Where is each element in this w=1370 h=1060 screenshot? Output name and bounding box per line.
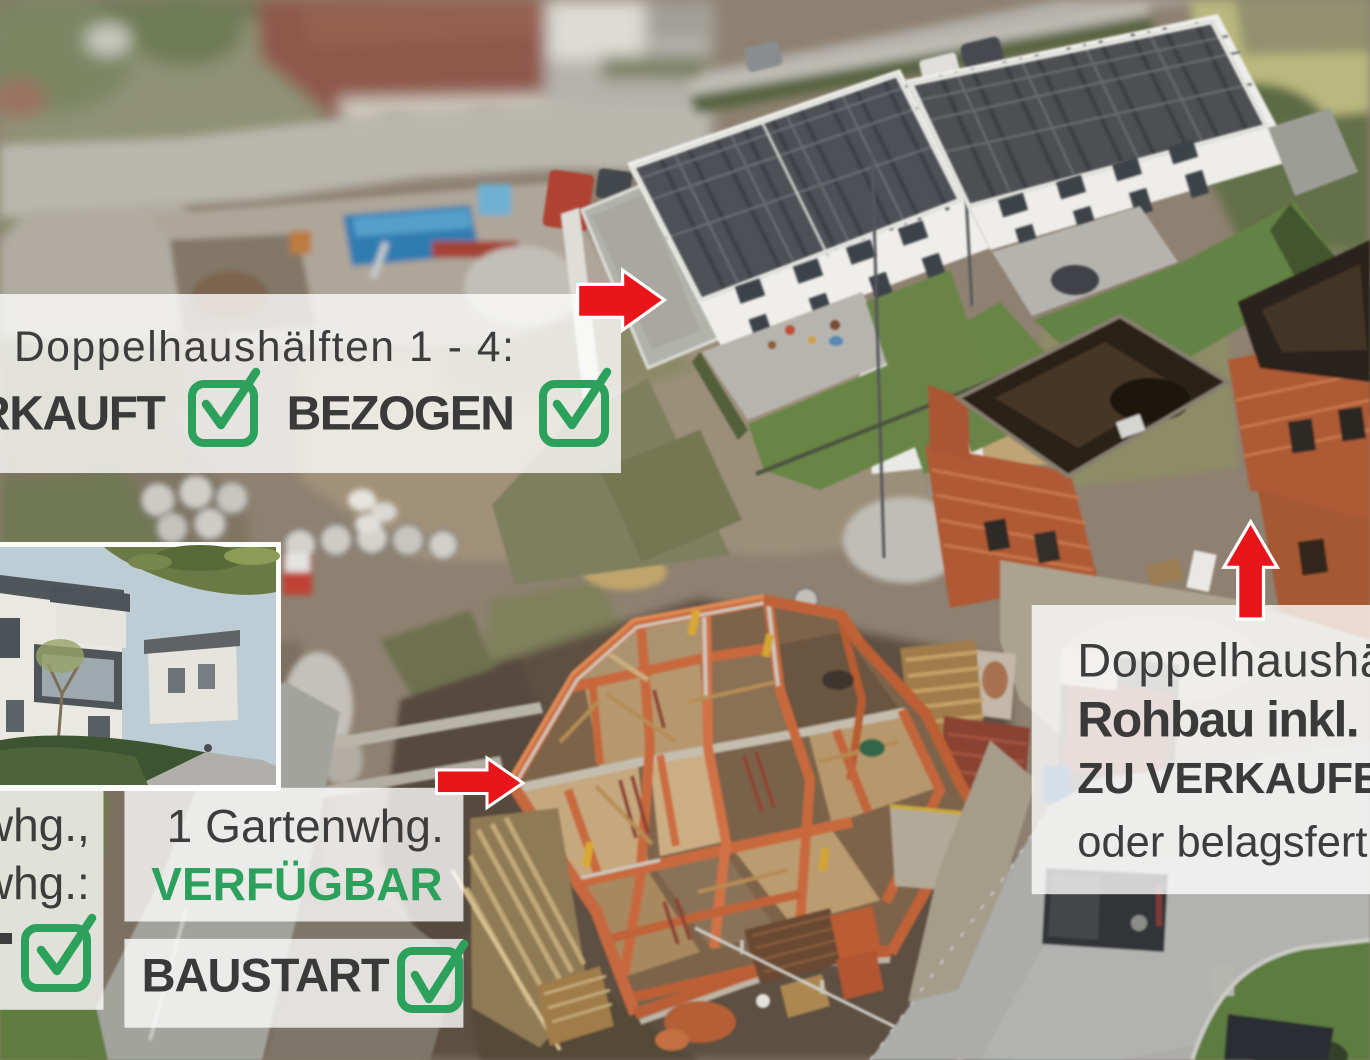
svg-text:Doppelhaushälften 5: Doppelhaushälften 5	[1077, 633, 1370, 686]
svg-text:1 Gartenwhg.: 1 Gartenwhg.	[167, 800, 444, 852]
svg-text:whg.:: whg.:	[0, 857, 90, 909]
svg-text:ZU VERKAUFEN: ZU VERKAUFEN	[1077, 755, 1370, 803]
svg-text:Doppelhaushälften 1 - 4:: Doppelhaushälften 1 - 4:	[14, 324, 516, 371]
svg-text:BAUSTART: BAUSTART	[142, 949, 390, 1002]
svg-text:whg.,: whg.,	[0, 799, 90, 851]
svg-text:oder belagsfertig: oder belagsfertig	[1077, 819, 1370, 867]
svg-text:VERKAUFT: VERKAUFT	[0, 388, 166, 441]
svg-text:Rohbau inkl. Da: Rohbau inkl. Da	[1077, 692, 1370, 748]
svg-text:BEZOGEN: BEZOGEN	[287, 388, 514, 441]
svg-text:VERFÜGBAR: VERFÜGBAR	[151, 858, 442, 910]
